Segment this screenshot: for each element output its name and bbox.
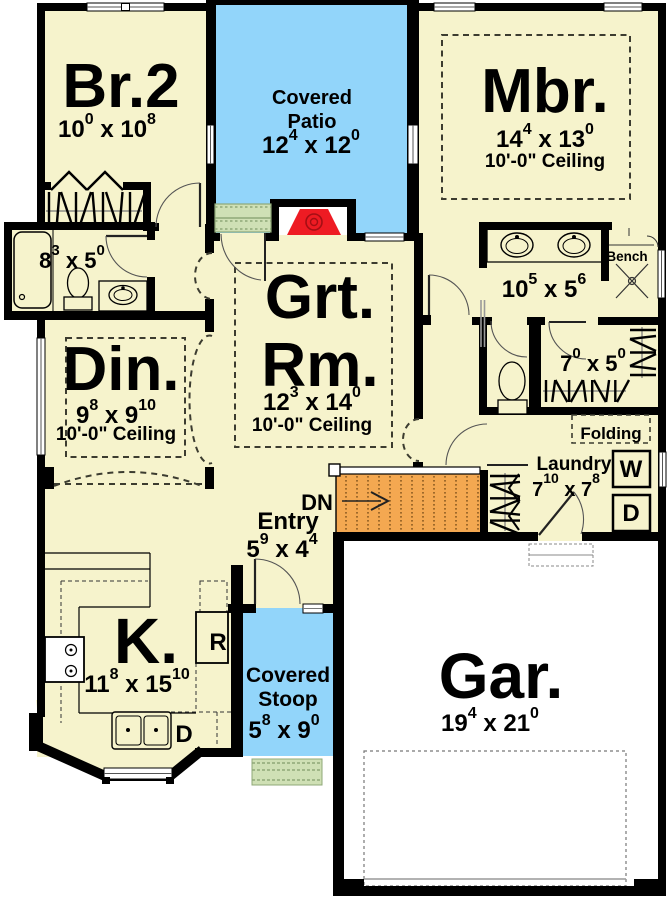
svg-text:Gar.: Gar. — [439, 640, 564, 712]
svg-text:D: D — [622, 500, 639, 527]
svg-text:Din.: Din. — [62, 335, 179, 404]
svg-text:K.: K. — [114, 605, 178, 677]
svg-text:Covered: Covered — [246, 664, 330, 687]
svg-text:D: D — [175, 721, 192, 748]
svg-text:Br.2: Br.2 — [62, 52, 179, 121]
svg-text:10'-0" Ceiling: 10'-0" Ceiling — [485, 151, 605, 172]
svg-text:Folding: Folding — [580, 424, 641, 443]
svg-text:Stoop: Stoop — [258, 688, 317, 711]
svg-text:58 x 90: 58 x 90 — [248, 712, 319, 744]
svg-text:Grt.: Grt. — [265, 263, 375, 332]
svg-text:10'-0" Ceiling: 10'-0" Ceiling — [252, 415, 372, 436]
svg-text:59 x 44: 59 x 44 — [246, 531, 317, 563]
svg-text:194 x 210: 194 x 210 — [441, 705, 539, 737]
svg-text:105 x 56: 105 x 56 — [502, 271, 587, 303]
svg-text:Mbr.: Mbr. — [481, 57, 608, 126]
svg-text:144 x 130: 144 x 130 — [496, 121, 594, 153]
svg-text:100 x 108: 100 x 108 — [58, 111, 156, 143]
svg-text:Bench: Bench — [606, 249, 647, 264]
svg-text:Covered: Covered — [272, 87, 352, 109]
svg-text:R: R — [209, 629, 226, 656]
svg-text:124 x 120: 124 x 120 — [262, 127, 360, 159]
svg-text:W: W — [620, 456, 643, 483]
svg-text:123 x 140: 123 x 140 — [263, 384, 361, 416]
svg-text:10'-0" Ceiling: 10'-0" Ceiling — [56, 424, 176, 445]
